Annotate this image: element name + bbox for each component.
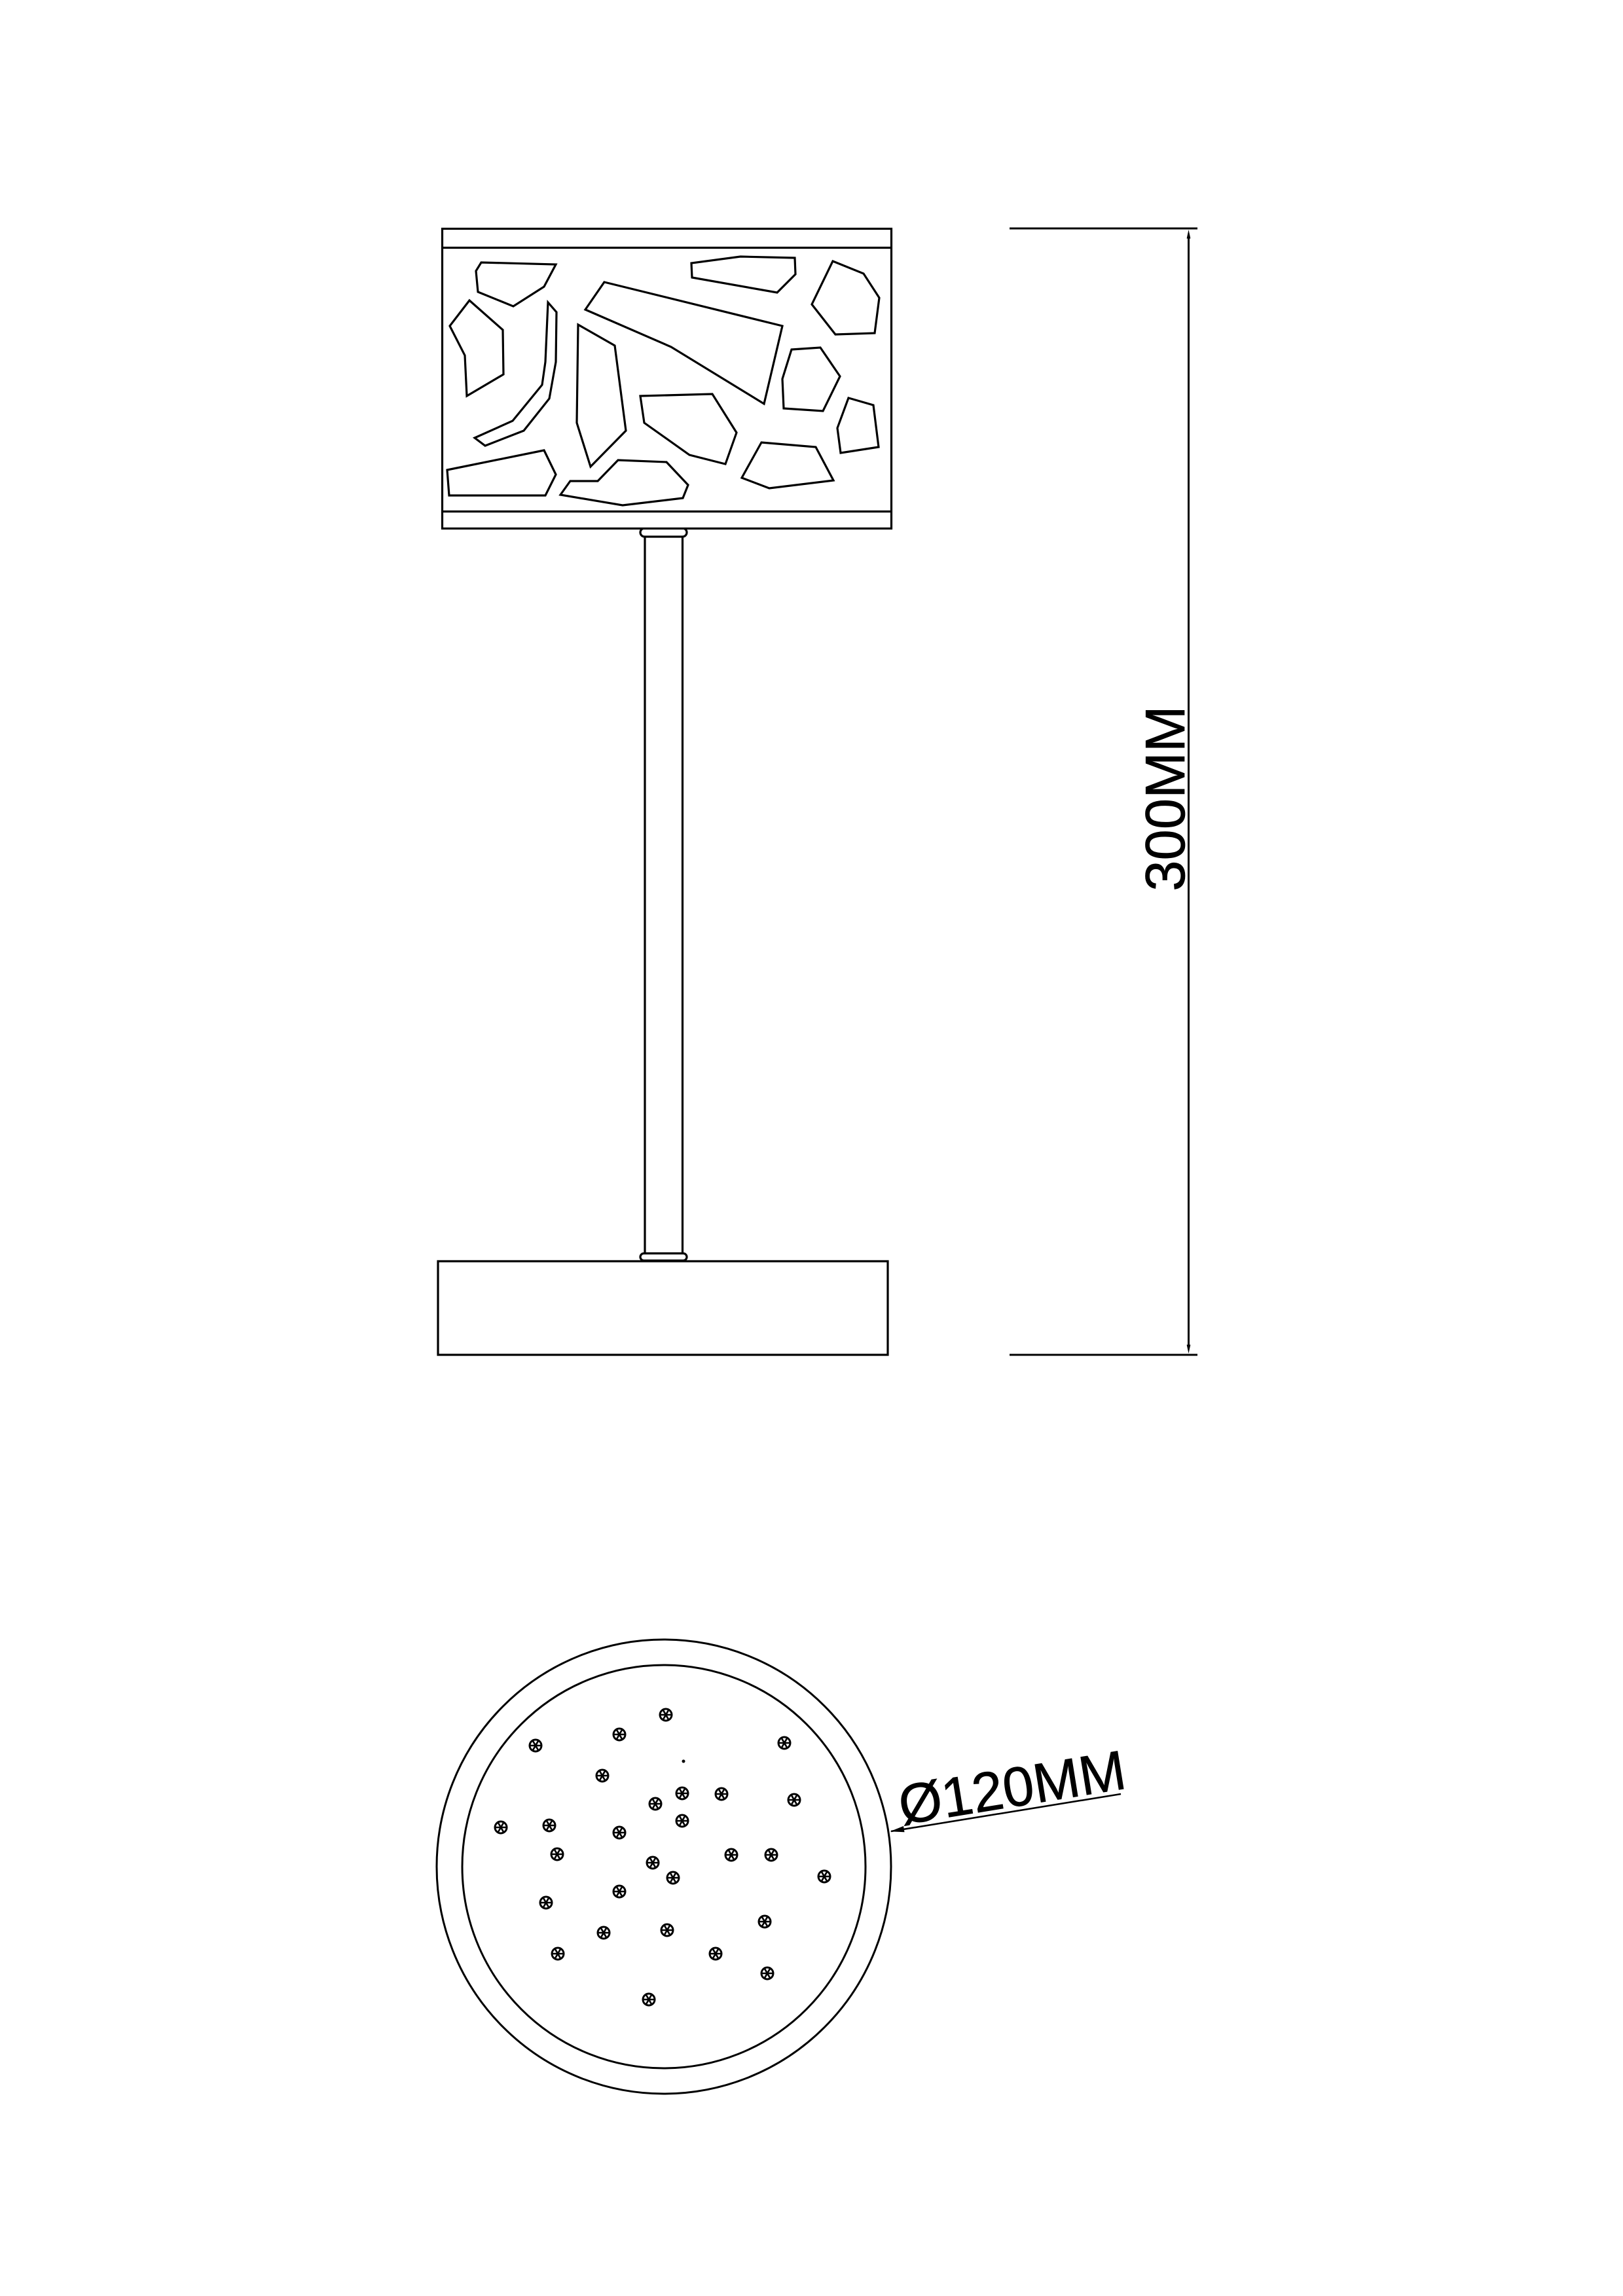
svg-text:Ø120MM: Ø120MM xyxy=(894,1739,1130,1837)
svg-text:300MM: 300MM xyxy=(1135,706,1197,891)
